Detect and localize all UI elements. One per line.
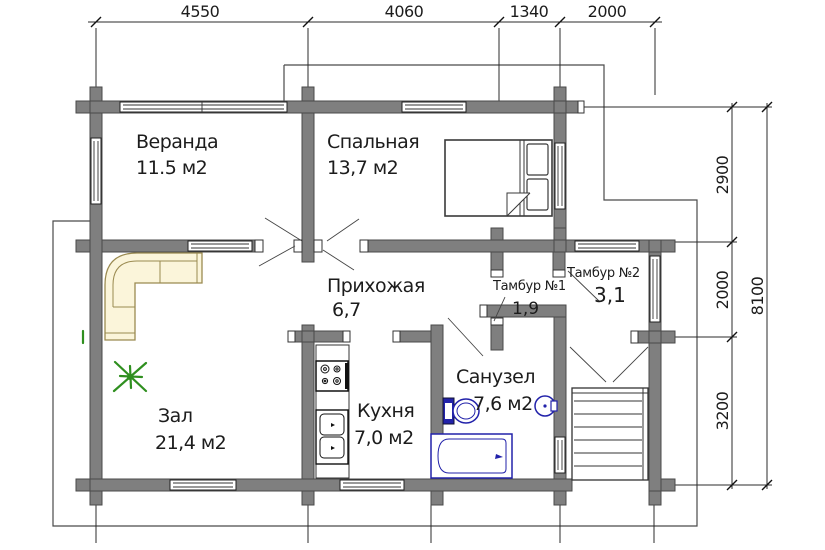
room-area-kuhnya: 7,0 м2 bbox=[354, 427, 414, 449]
room-area-spalnaya: 13,7 м2 bbox=[327, 157, 398, 179]
room-label-tambur1: Тамбур №1 bbox=[492, 279, 566, 294]
dim-top-1: 4060 bbox=[385, 2, 424, 21]
room-area-veranda: 11.5 м2 bbox=[136, 157, 207, 179]
room-area-prihozhaya: 6,7 bbox=[332, 299, 361, 321]
room-area-zal: 21,4 м2 bbox=[155, 432, 226, 454]
pillow bbox=[527, 179, 548, 210]
plant-center bbox=[127, 374, 133, 380]
dim-top-3: 2000 bbox=[588, 2, 627, 21]
stove-handle bbox=[345, 363, 349, 389]
room-label-prihozhaya: Прихожая bbox=[327, 275, 425, 297]
dim-right-0: 2900 bbox=[713, 155, 732, 194]
floor-plan-drawing: Веранда 11.5 м2 Спальная 13,7 м2 Прихожа… bbox=[0, 0, 825, 550]
room-area-sanuzel: 7,6 м2 bbox=[473, 393, 533, 415]
room-label-zal: Зал bbox=[158, 405, 192, 427]
basin-tap bbox=[551, 401, 557, 411]
dim-right-total: 8100 bbox=[748, 276, 767, 315]
stove bbox=[316, 361, 348, 391]
dim-top-2: 1340 bbox=[510, 2, 549, 21]
corner-sofa bbox=[105, 253, 202, 340]
floor-plan-page: Веранда 11.5 м2 Спальная 13,7 м2 Прихожа… bbox=[0, 0, 825, 550]
toilet-tank-lid bbox=[445, 403, 452, 419]
dim-right-1: 2000 bbox=[713, 270, 732, 309]
dim-right-2: 3200 bbox=[713, 391, 732, 430]
kitchen-fixtures bbox=[316, 345, 349, 478]
room-area-tambur1: 1,9 bbox=[512, 299, 539, 319]
pillow bbox=[527, 144, 548, 175]
room-label-spalnaya: Спальная bbox=[327, 131, 419, 153]
wash-basin-drain bbox=[543, 404, 546, 407]
room-label-kuhnya: Кухня bbox=[357, 400, 414, 422]
room-label-veranda: Веранда bbox=[136, 131, 218, 153]
room-area-tambur2: 3,1 bbox=[594, 283, 626, 307]
room-label-tambur2: Тамбур №2 bbox=[566, 266, 640, 281]
double-bed bbox=[445, 140, 552, 216]
staircase bbox=[572, 388, 648, 480]
dim-top-0: 4550 bbox=[181, 2, 220, 21]
room-label-sanuzel: Санузел bbox=[456, 366, 535, 388]
